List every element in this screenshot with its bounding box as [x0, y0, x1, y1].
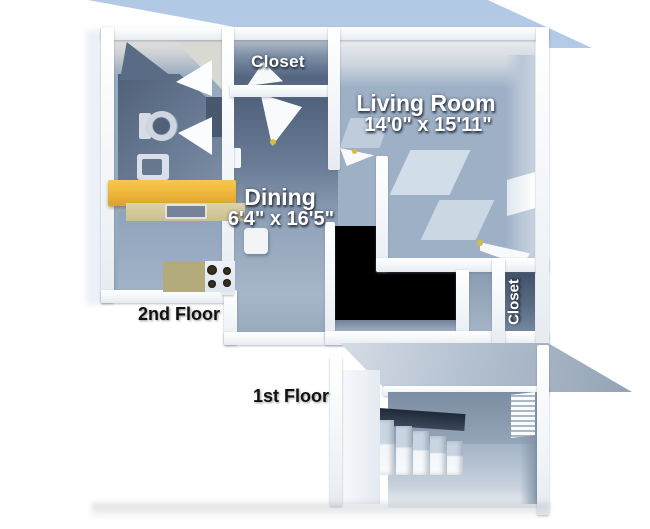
label-dining-name: Dining [244, 184, 316, 211]
stair-step [378, 420, 394, 475]
wall-closet-dining-divider [230, 85, 334, 97]
wall-stairwell-left [325, 222, 335, 340]
stove-burner-icon [207, 265, 217, 275]
bathroom-sink-basin [142, 159, 162, 175]
living-door-hinge-top [352, 149, 357, 154]
stair-step [447, 441, 463, 475]
label-second-floor: 2nd Floor [138, 304, 220, 325]
wall-dining-living-divider [328, 27, 340, 170]
stove-burner-icon [208, 280, 216, 288]
label-closet-top: Closet [251, 52, 305, 72]
toilet-bowl [146, 111, 178, 141]
stove-burner-icon [223, 267, 231, 275]
landing-strip [469, 272, 493, 333]
wall-top [101, 27, 549, 40]
kitchen-sink [165, 204, 207, 219]
wall-bottom-long [325, 331, 549, 345]
label-living-room-name: Living Room [356, 90, 495, 117]
label-first-floor: 1st Floor [253, 386, 329, 407]
living-right-wall-band [505, 55, 535, 262]
wall-bath-closet-divider [222, 27, 234, 295]
dining-table [244, 228, 268, 254]
label-closet-side: Closet [506, 279, 523, 325]
stove-counter-tan [163, 261, 207, 292]
floor-plan-canvas: Closet Living Room 14'0" x 15'11" Dining… [0, 0, 650, 529]
first-floor-wall-left [330, 356, 342, 506]
first-floor-wall-right [537, 345, 549, 515]
stair-step [396, 426, 412, 475]
first-floor-window-blinds [511, 392, 535, 438]
label-living-room-dimensions: 14'0" x 15'11" [364, 114, 491, 137]
label-dining-dimensions: 6'4" x 16'5" [228, 208, 334, 231]
dining-door-hinge-dot [270, 139, 276, 145]
living-door-hinge-bottom [477, 240, 483, 246]
stove-burner-icon [223, 279, 231, 287]
wall-right [536, 27, 549, 345]
wall-void-right [456, 270, 469, 340]
stair-step [413, 431, 429, 475]
wall-side-closet-left [492, 258, 505, 345]
stair-step [430, 436, 446, 475]
first-floor-left-wall-face [341, 370, 380, 504]
wall-stair-living [376, 156, 388, 272]
wall-left [101, 27, 114, 303]
ground-shadow [92, 503, 550, 519]
